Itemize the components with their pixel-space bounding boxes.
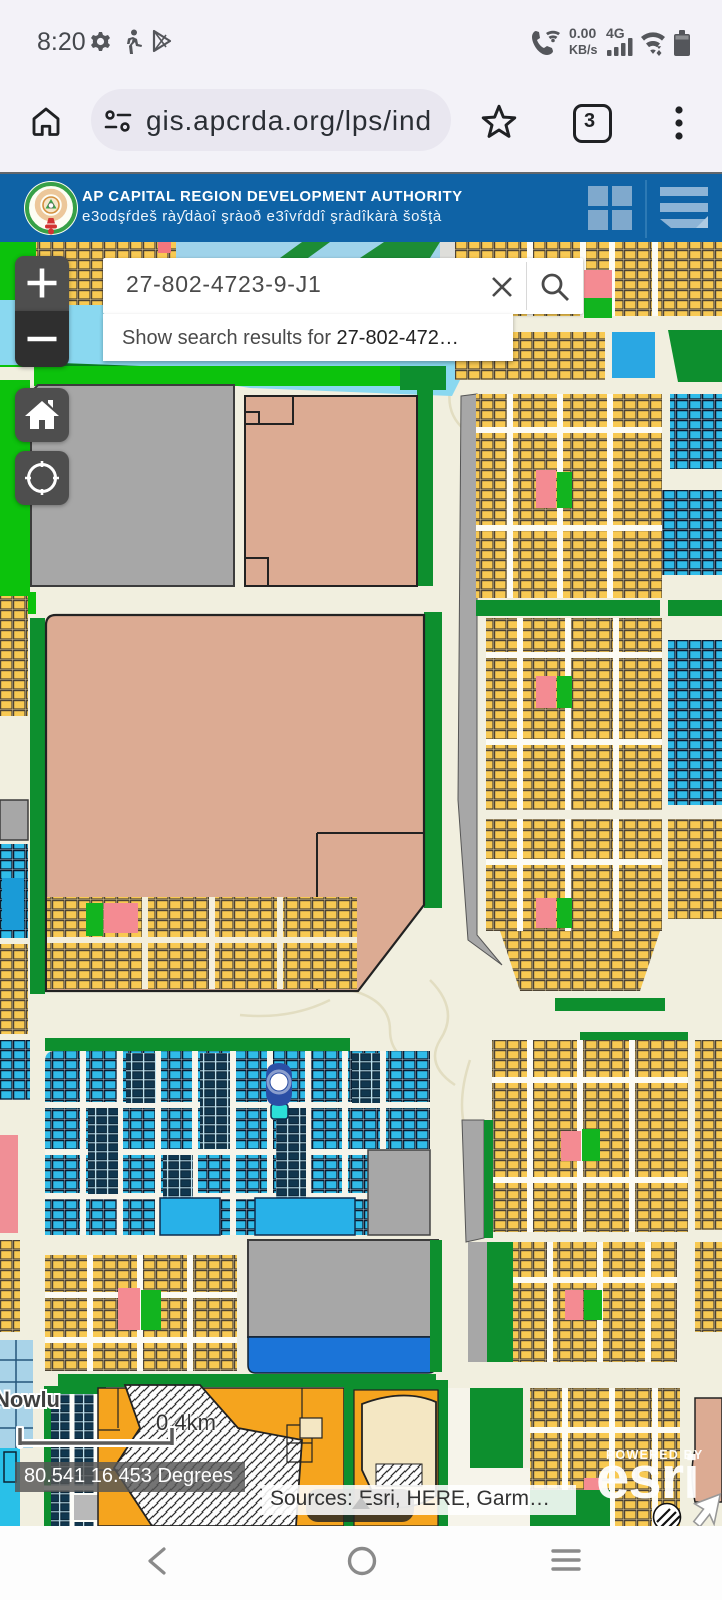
svg-text:0.00: 0.00 bbox=[569, 25, 596, 41]
svg-text:4G: 4G bbox=[606, 25, 625, 41]
svg-text:KB/s: KB/s bbox=[569, 43, 598, 57]
svg-text:Nowlu: Nowlu bbox=[0, 1387, 60, 1412]
